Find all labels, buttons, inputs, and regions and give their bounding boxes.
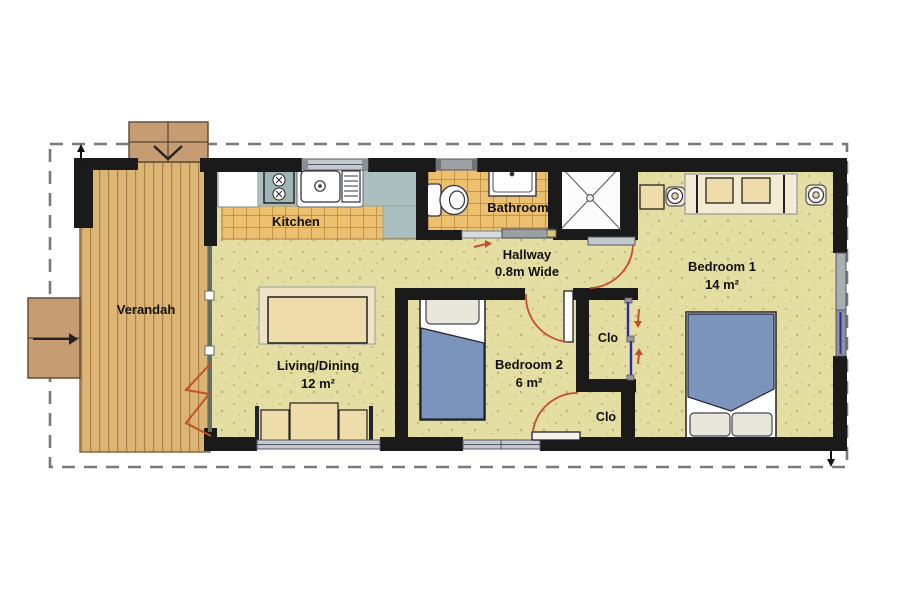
living-dining-area: 12 m² xyxy=(301,376,336,391)
kitchen-label: Kitchen xyxy=(272,214,320,229)
shower-icon xyxy=(560,166,621,230)
bedroom2-area: 6 m² xyxy=(516,375,543,390)
closet-bottom-label: Clo xyxy=(596,410,617,424)
bedroom2-label: Bedroom 2 xyxy=(495,357,563,372)
verandah-label: Verandah xyxy=(117,302,176,317)
kitchen-sink-icon xyxy=(297,166,363,207)
kitchen-window xyxy=(302,159,368,170)
hallway-label: Hallway xyxy=(503,247,552,262)
left-entry-steps xyxy=(28,298,80,378)
bedroom2-window xyxy=(463,440,540,449)
living-window xyxy=(257,440,380,449)
floor-plan: Verandah Kitchen Bathroom Hallway 0.8m W… xyxy=(0,0,900,600)
bedroom1-label: Bedroom 1 xyxy=(688,259,756,274)
bedroom2-bed-icon xyxy=(420,291,485,420)
bathroom-label: Bathroom xyxy=(487,200,548,215)
dresser-sofa-icon xyxy=(685,174,797,214)
hallway-width-note: 0.8m Wide xyxy=(495,264,559,279)
fridge xyxy=(218,167,258,207)
dining-table-icon xyxy=(259,287,375,344)
living-dining-label: Living/Dining xyxy=(277,358,359,373)
mullion-mark xyxy=(205,346,214,355)
kitchen-counter-return xyxy=(383,206,418,238)
top-entry-steps xyxy=(129,122,208,162)
mullion-mark xyxy=(205,291,214,300)
nightstand-icon xyxy=(640,185,664,209)
lamp-table-icon-2 xyxy=(806,185,826,205)
closet-top-label: Clo xyxy=(598,331,619,345)
bedroom1-area: 14 m² xyxy=(705,277,740,292)
bedroom1-bed-icon xyxy=(686,312,776,439)
bathroom-window xyxy=(436,159,477,170)
bedroom1-window xyxy=(836,253,846,356)
cooktop-icon xyxy=(264,171,294,203)
toilet-icon xyxy=(427,184,468,216)
lamp-table-icon xyxy=(666,187,685,206)
